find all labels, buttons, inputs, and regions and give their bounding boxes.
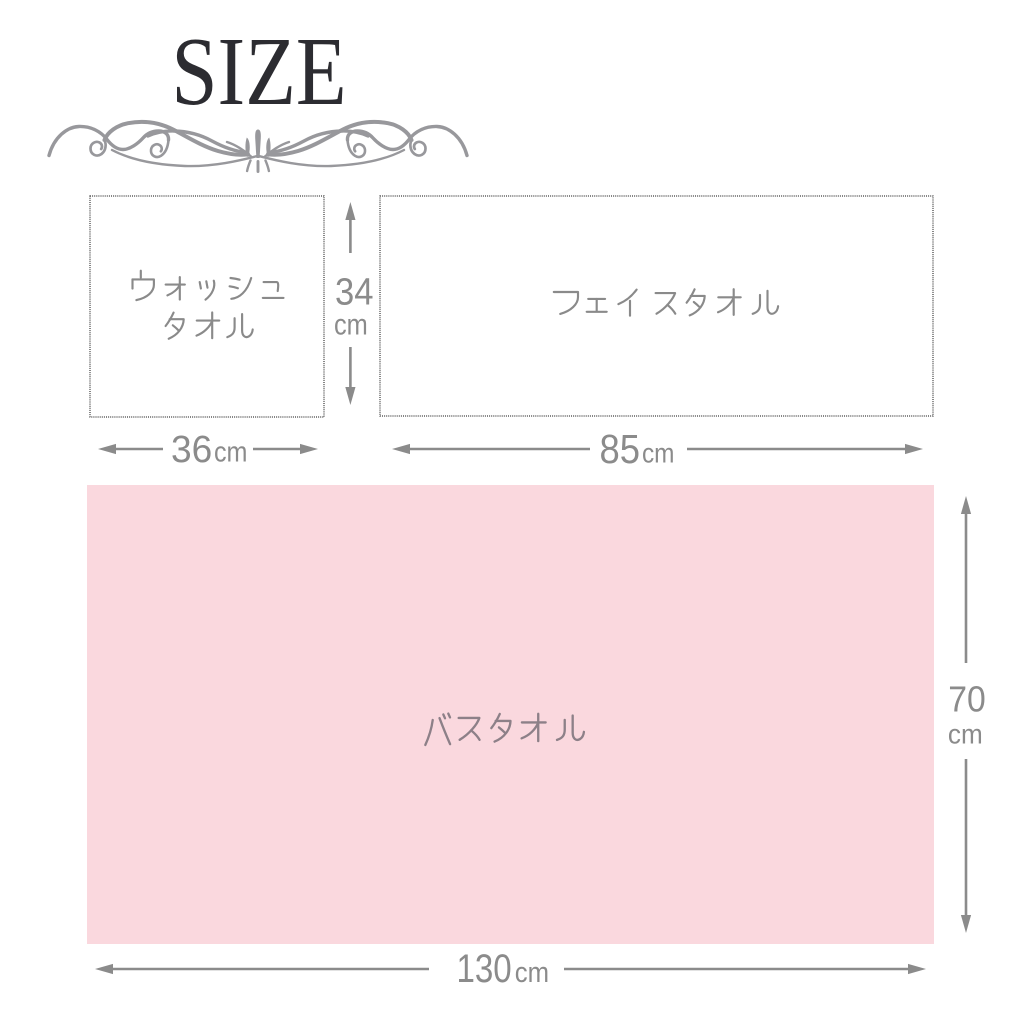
svg-text:cm: cm — [642, 438, 675, 469]
svg-text:130: 130 — [457, 947, 512, 991]
svg-text:cm: cm — [948, 718, 983, 749]
svg-text:70: 70 — [948, 679, 986, 720]
svg-text:cm: cm — [214, 437, 248, 469]
svg-text:cm: cm — [515, 957, 549, 989]
svg-text:34: 34 — [335, 272, 374, 314]
svg-text:cm: cm — [334, 309, 368, 342]
svg-text:SIZE: SIZE — [171, 18, 346, 125]
svg-text:85: 85 — [600, 426, 641, 472]
svg-text:36: 36 — [171, 429, 212, 471]
